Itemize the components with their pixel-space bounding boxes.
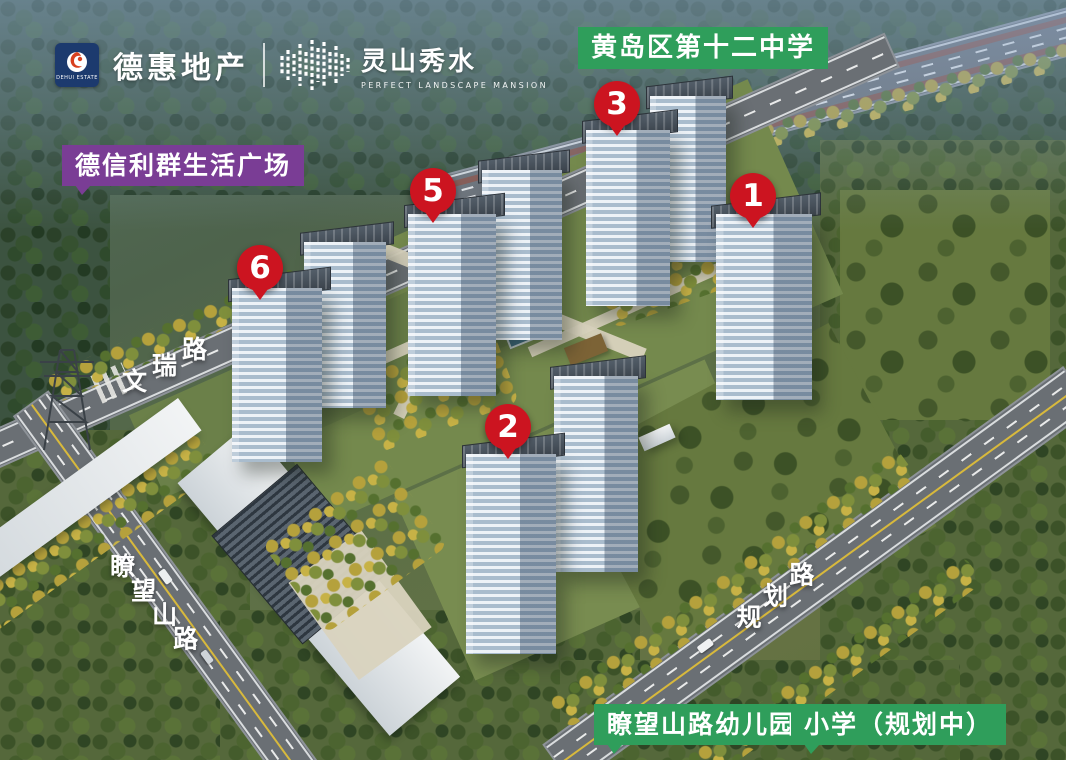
building-pin-6: 6 <box>237 245 283 291</box>
badge-life-plaza: 德信利群生活广场 <box>62 145 304 186</box>
badge-primary-school: 小学（规划中） <box>791 704 1006 745</box>
developer-logo-icon: DEHUI ESTATE <box>55 43 99 87</box>
building-pin-1: 1 <box>730 173 776 219</box>
tower-facade <box>408 214 496 396</box>
tower-facade <box>554 376 638 572</box>
badge-middle-school: 黄岛区第十二中学 <box>578 27 828 69</box>
building-pin-5: 5 <box>410 168 456 214</box>
developer-name: 德惠地产 <box>113 43 249 87</box>
pin-number: 5 <box>422 173 444 209</box>
residential-tower <box>466 454 556 654</box>
residential-tower <box>554 376 638 572</box>
transmission-tower <box>34 346 100 454</box>
residential-tower <box>716 214 812 400</box>
project-names: 灵山秀水 PERFECT LANDSCAPE MANSION <box>361 41 548 90</box>
aerial-site-plan: 1 2 3 5 6 文瑞路 瞭望山路 规划路 黄岛区第十二中学 德信利群生活广场… <box>0 0 1066 760</box>
tower-facade <box>232 288 322 462</box>
residential-tower <box>232 288 322 462</box>
residential-tower <box>586 130 670 306</box>
project-lockup: 灵山秀水 PERFECT LANDSCAPE MANSION <box>279 38 548 92</box>
badge-kindergarten: 瞭望山路幼儿园 <box>594 704 809 745</box>
logo-divider <box>263 43 265 87</box>
project-name: 灵山秀水 <box>361 41 548 78</box>
residential-tower <box>408 214 496 396</box>
developer-logo-caption: DEHUI ESTATE <box>56 75 98 81</box>
building-pin-2: 2 <box>485 404 531 450</box>
pin-number: 2 <box>497 409 519 445</box>
pin-number: 3 <box>606 86 628 122</box>
building-pin-3: 3 <box>594 81 640 127</box>
brand-lockup: DEHUI ESTATE 德惠地产 <box>55 38 548 92</box>
tower-facade <box>466 454 556 654</box>
project-tagline: PERFECT LANDSCAPE MANSION <box>361 81 548 90</box>
tower-facade <box>716 214 812 400</box>
pin-number: 1 <box>742 178 764 214</box>
pin-number: 6 <box>249 250 271 286</box>
phoenix-swirl-icon <box>64 50 90 74</box>
soundwave-logo-icon <box>279 38 351 92</box>
tower-facade <box>586 130 670 306</box>
